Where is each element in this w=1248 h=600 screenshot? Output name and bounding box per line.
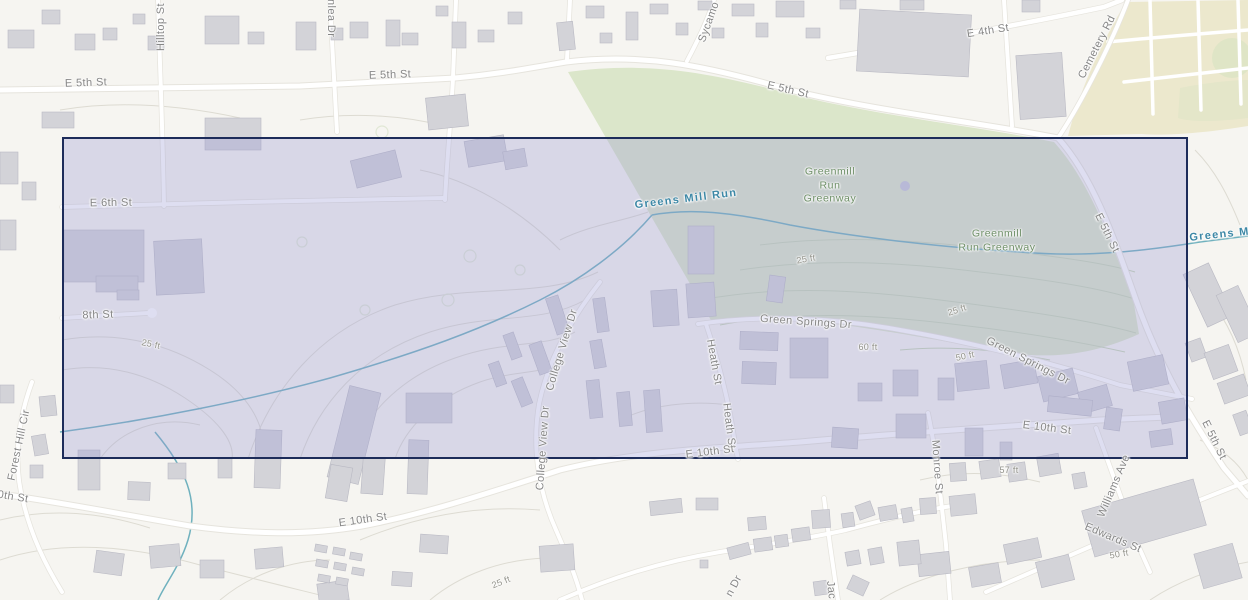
map-canvas[interactable]: E 5th StE 5th StE 5th StE 4th StCemetery… <box>0 0 1248 600</box>
selection-rectangle[interactable] <box>62 137 1188 459</box>
